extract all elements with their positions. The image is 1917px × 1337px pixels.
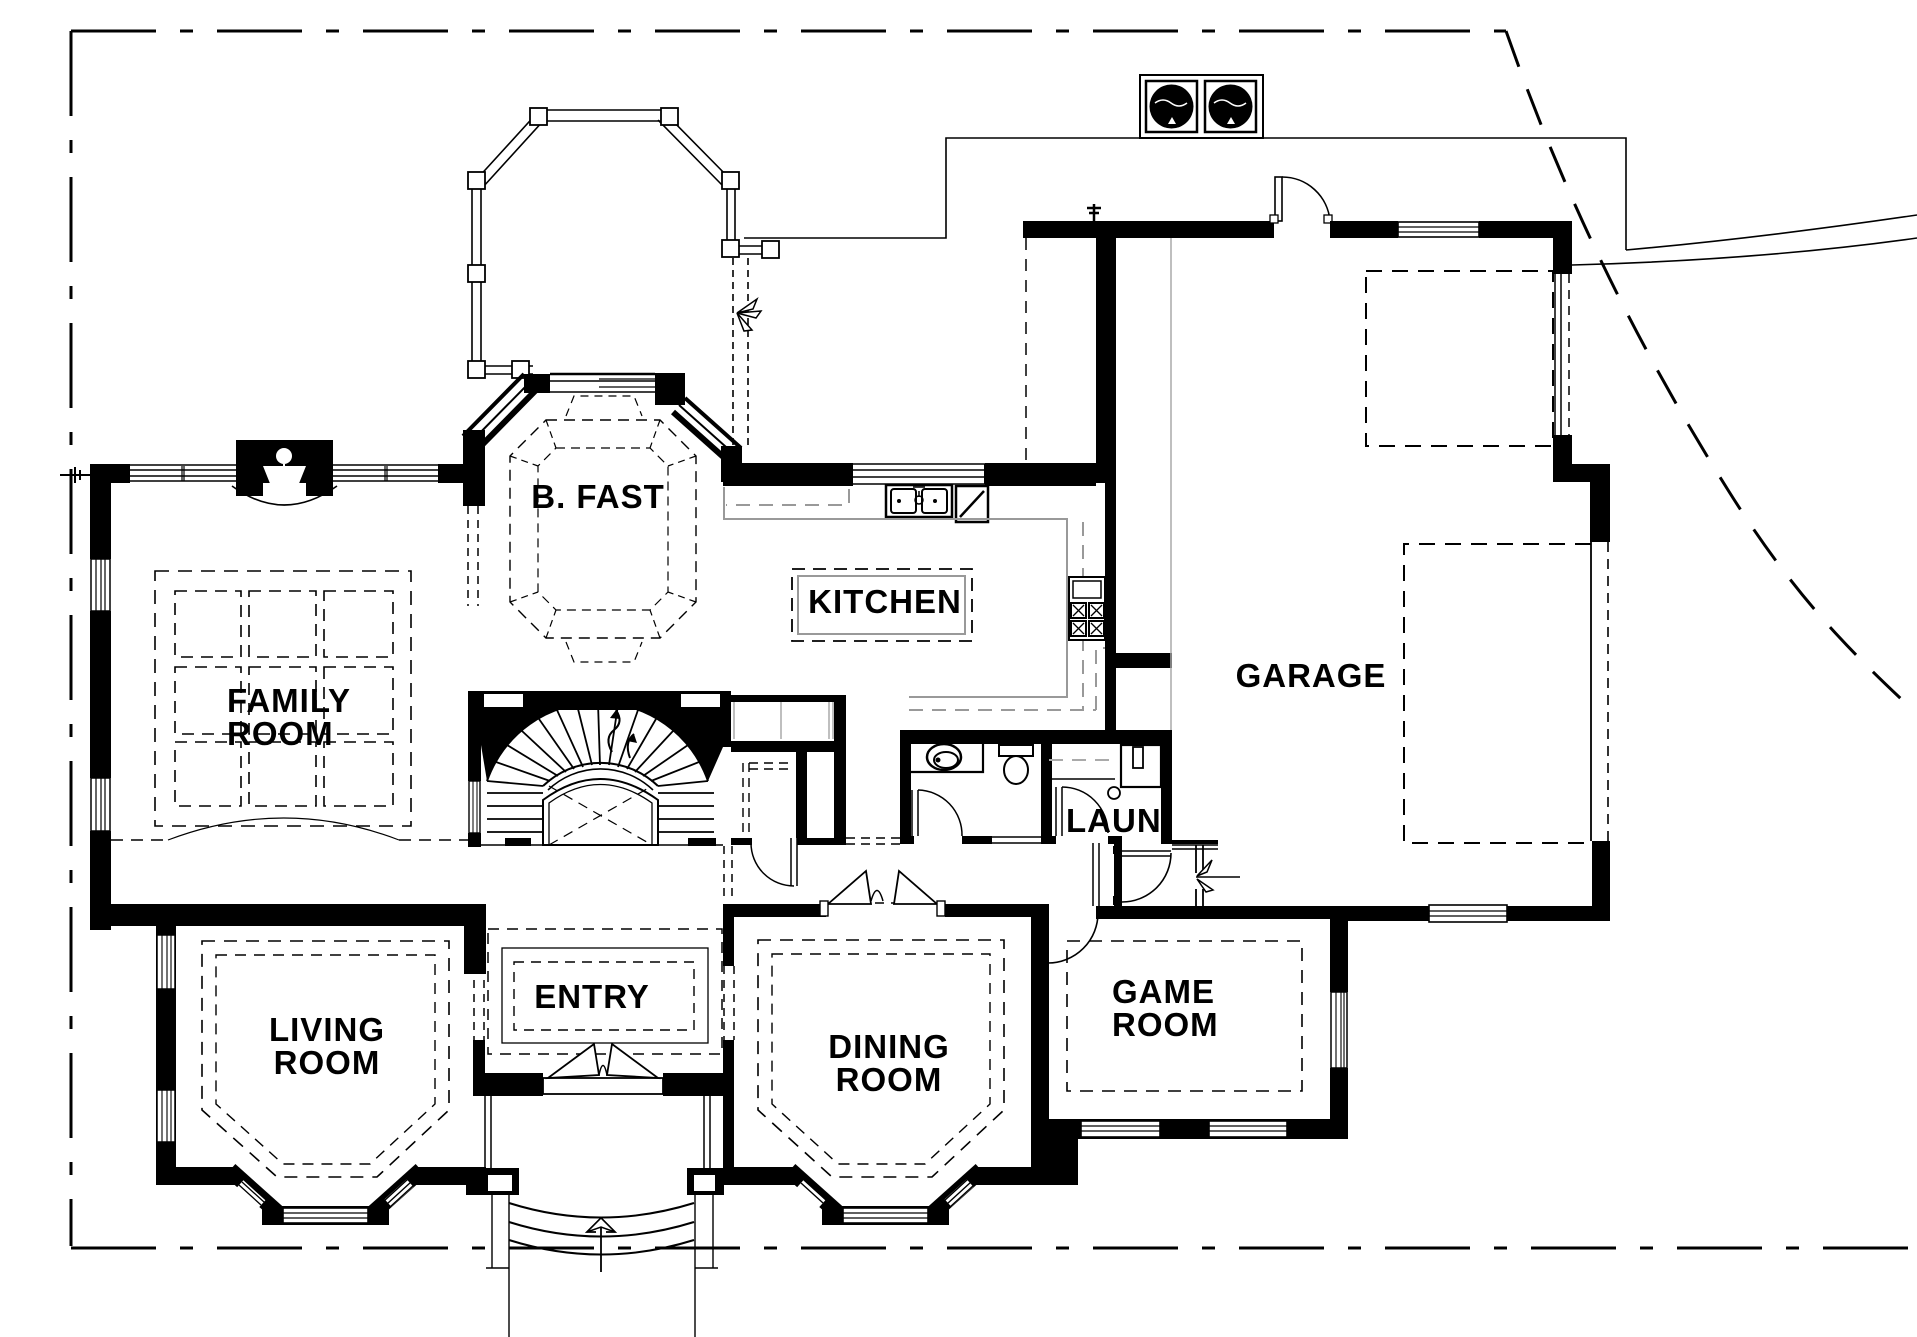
svg-text:FAMILY: FAMILY — [227, 682, 351, 719]
svg-text:ROOM: ROOM — [274, 1044, 381, 1081]
svg-text:DINING: DINING — [828, 1028, 950, 1065]
svg-text:GAME: GAME — [1112, 973, 1215, 1010]
svg-text:LIVING: LIVING — [269, 1011, 385, 1048]
svg-text:ROOM: ROOM — [836, 1061, 943, 1098]
svg-text:B. FAST: B. FAST — [531, 478, 665, 515]
svg-text:ROOM: ROOM — [1112, 1006, 1219, 1043]
svg-text:KITCHEN: KITCHEN — [808, 583, 962, 620]
svg-text:ROOM: ROOM — [227, 715, 334, 752]
svg-text:GARAGE: GARAGE — [1236, 657, 1387, 694]
svg-text:LAUN.: LAUN. — [1066, 802, 1172, 839]
svg-text:ENTRY: ENTRY — [534, 978, 650, 1015]
